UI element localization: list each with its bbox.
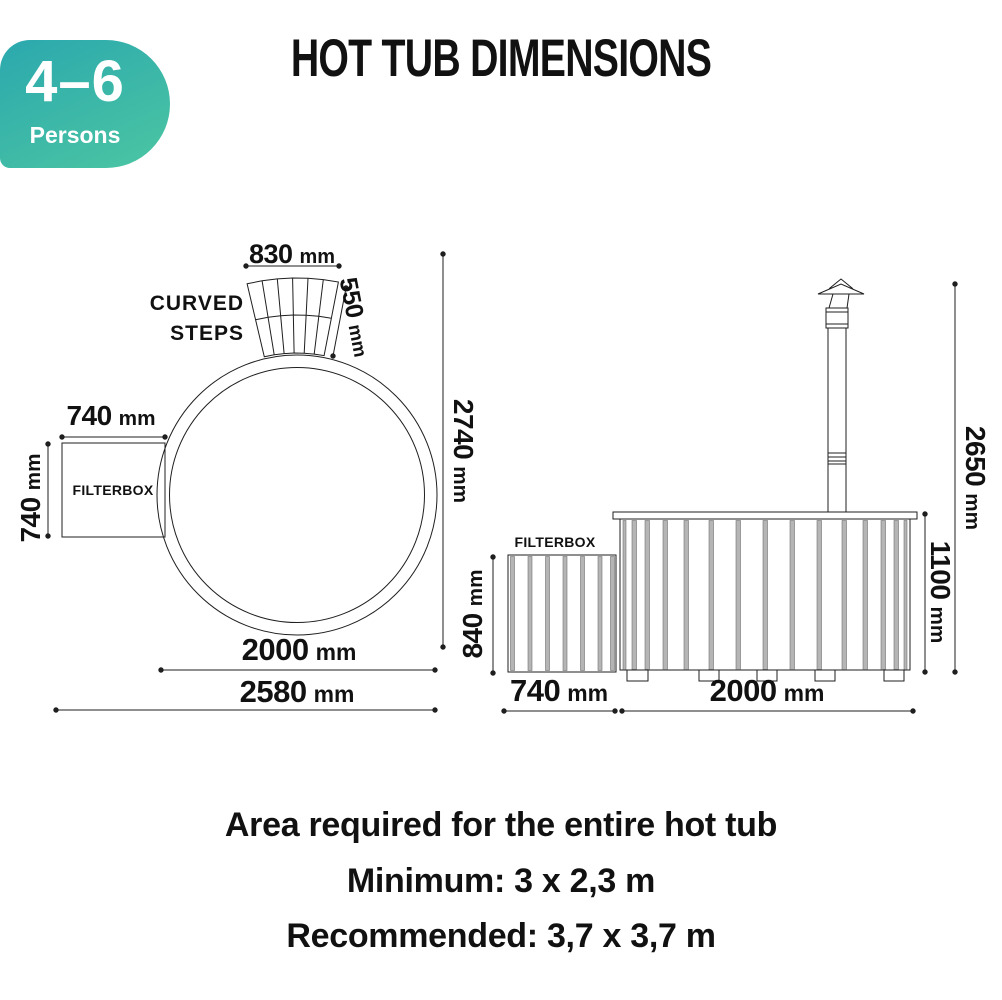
- dim-value: 2000: [710, 673, 777, 708]
- dim-tub-height-label: 1100mm: [926, 527, 956, 657]
- dim-filterbox-width-side-label: 740mm: [479, 673, 639, 709]
- dim-unit: mm: [926, 606, 949, 643]
- dim-value: 740: [510, 673, 560, 708]
- curved-steps-label-line2: STEPS: [124, 322, 244, 346]
- curved-steps-shape: [247, 278, 338, 357]
- dim-unit: mm: [22, 453, 45, 490]
- filterbox-side-shape: [508, 555, 616, 672]
- dim-unit: mm: [314, 681, 355, 707]
- badge-person-label: Persons: [0, 122, 150, 149]
- page: 4–6 Persons HOT TUB DIMENSIONS 830mm 550…: [0, 0, 1002, 1000]
- dim-unit: mm: [567, 680, 608, 706]
- tub-top-circle: [157, 355, 437, 635]
- dim-tub-width-label: 2000mm: [687, 673, 847, 709]
- footer-minimum-area: Minimum: 3 x 2,3 m: [0, 862, 1002, 901]
- dim-total-height-label: 2650mm: [961, 408, 991, 548]
- dim-unit: mm: [961, 493, 984, 530]
- dim-unit: mm: [119, 407, 156, 430]
- tub-side-shape: [613, 512, 917, 681]
- dim-value: 830: [249, 239, 293, 269]
- dim-value: 740: [15, 497, 46, 542]
- curved-steps-label-line1: CURVED: [124, 292, 244, 316]
- dim-filterbox-width-label: 740mm: [41, 400, 181, 432]
- dim-value: 2580: [240, 674, 307, 709]
- filterbox-side-label: FILTERBOX: [495, 534, 615, 550]
- dim-filterbox-height-label: 840mm: [457, 549, 487, 679]
- filterbox-top-label: FILTERBOX: [58, 482, 168, 498]
- dim-value: 740: [66, 400, 111, 431]
- dim-total-depth-label: 2740mm: [449, 381, 479, 521]
- dim-value: 2650: [960, 426, 991, 486]
- dim-total-width-label: 2580mm: [217, 674, 377, 710]
- dim-unit: mm: [784, 680, 825, 706]
- dim-tub-diameter-label: 2000mm: [219, 632, 379, 668]
- chimney-shape: [818, 279, 864, 512]
- title-row: HOT TUB DIMENSIONS: [0, 28, 1002, 89]
- footer-area-required: Area required for the entire hot tub: [0, 806, 1002, 845]
- dim-value: 1100: [925, 541, 956, 600]
- side-view-drawing: [491, 279, 957, 713]
- dim-value: 840: [457, 613, 488, 658]
- dim-value: 2740: [448, 399, 479, 459]
- dim-filterbox-depth-label: 740mm: [15, 428, 45, 568]
- dim-unit: mm: [316, 639, 357, 665]
- dim-unit: mm: [300, 246, 336, 268]
- dim-value: 2000: [242, 632, 309, 667]
- dim-unit: mm: [464, 569, 487, 606]
- dim-unit: mm: [449, 466, 472, 503]
- page-title: HOT TUB DIMENSIONS: [291, 28, 711, 89]
- footer-recommended-area: Recommended: 3,7 x 3,7 m: [0, 917, 1002, 956]
